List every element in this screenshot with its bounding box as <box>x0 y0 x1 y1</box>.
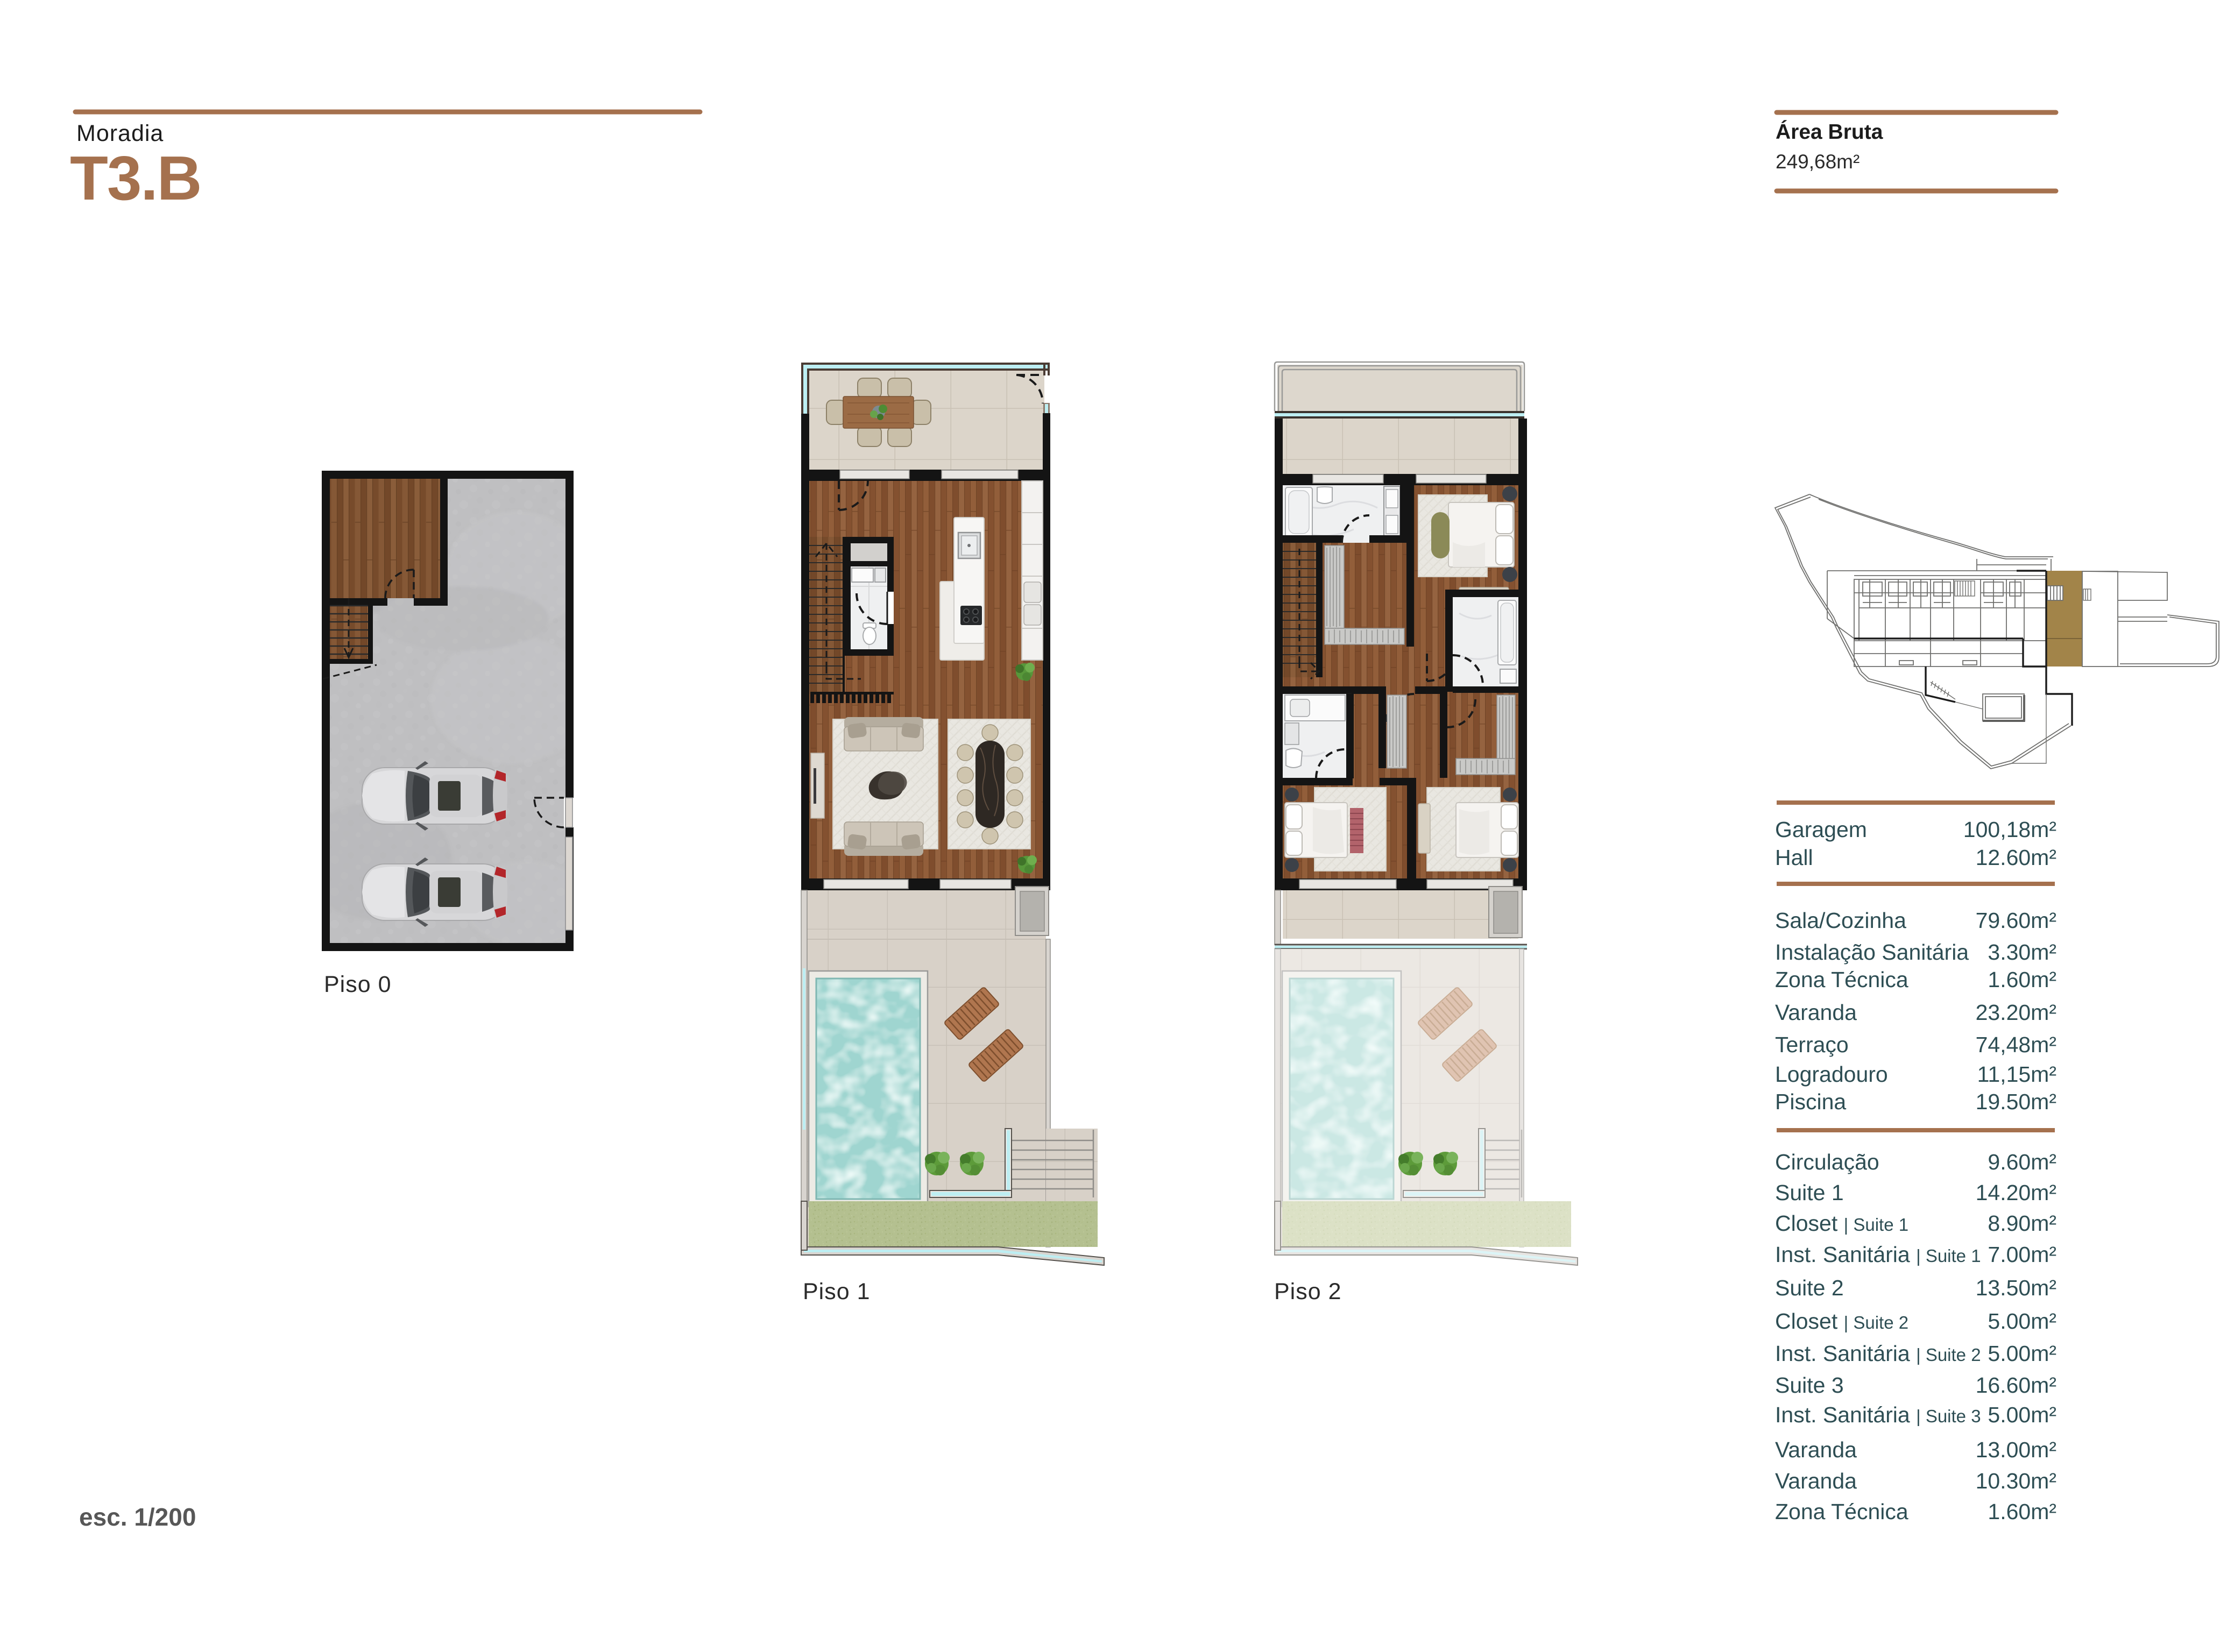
svg-text:249,68m²: 249,68m² <box>1776 151 1860 173</box>
svg-text:Piscina: Piscina <box>1775 1089 1846 1114</box>
svg-text:23.20m²: 23.20m² <box>1976 1000 2056 1025</box>
svg-text:Área Bruta: Área Bruta <box>1776 120 1883 144</box>
svg-text:3.30m²: 3.30m² <box>1988 940 2056 965</box>
svg-text:13.00m²: 13.00m² <box>1976 1437 2056 1462</box>
svg-text:esc. 1/200: esc. 1/200 <box>79 1503 196 1531</box>
svg-text:5.00m²: 5.00m² <box>1988 1309 2056 1334</box>
svg-text:19.50m²: 19.50m² <box>1976 1089 2056 1114</box>
svg-text:Varanda: Varanda <box>1775 1469 1857 1493</box>
svg-text:10.30m²: 10.30m² <box>1976 1469 2056 1493</box>
svg-text:T3.B: T3.B <box>70 143 201 213</box>
svg-text:Instalação Sanitária: Instalação Sanitária <box>1775 940 1969 965</box>
svg-text:Piso 2: Piso 2 <box>1274 1279 1342 1304</box>
svg-text:7.00m²: 7.00m² <box>1988 1242 2056 1267</box>
svg-text:Zona Técnica: Zona Técnica <box>1775 967 1908 992</box>
svg-text:74,48m²: 74,48m² <box>1976 1032 2056 1057</box>
svg-text:Suite 3: Suite 3 <box>1775 1373 1844 1398</box>
svg-text:100,18m²: 100,18m² <box>1963 817 2056 842</box>
svg-text:Closet | Suite 2: Closet | Suite 2 <box>1775 1309 1908 1334</box>
svg-text:Inst. Sanitária | Suite 3: Inst. Sanitária | Suite 3 <box>1775 1402 1981 1427</box>
svg-text:Zona Técnica: Zona Técnica <box>1775 1499 1908 1524</box>
svg-text:79.60m²: 79.60m² <box>1976 908 2056 933</box>
svg-text:Varanda: Varanda <box>1775 1000 1857 1025</box>
svg-text:1.60m²: 1.60m² <box>1988 967 2056 992</box>
svg-text:Circulação: Circulação <box>1775 1150 1879 1174</box>
svg-text:Closet | Suite 1: Closet | Suite 1 <box>1775 1211 1908 1236</box>
svg-text:Piso 1: Piso 1 <box>803 1279 871 1304</box>
svg-text:Inst. Sanitária | Suite 1: Inst. Sanitária | Suite 1 <box>1775 1242 1981 1267</box>
svg-text:14.20m²: 14.20m² <box>1976 1180 2056 1205</box>
svg-text:5.00m²: 5.00m² <box>1988 1402 2056 1427</box>
svg-text:1.60m²: 1.60m² <box>1988 1499 2056 1524</box>
svg-text:Varanda: Varanda <box>1775 1437 1857 1462</box>
svg-text:Hall: Hall <box>1775 845 1813 870</box>
svg-text:Suite 1: Suite 1 <box>1775 1180 1844 1205</box>
svg-text:Garagem: Garagem <box>1775 817 1867 842</box>
svg-text:Logradouro: Logradouro <box>1775 1062 1888 1087</box>
svg-text:8.90m²: 8.90m² <box>1988 1211 2056 1236</box>
svg-text:Inst. Sanitária | Suite 2: Inst. Sanitária | Suite 2 <box>1775 1341 1981 1366</box>
svg-text:Piso 0: Piso 0 <box>324 972 392 997</box>
svg-text:12.60m²: 12.60m² <box>1976 845 2056 870</box>
svg-text:9.60m²: 9.60m² <box>1988 1150 2056 1174</box>
svg-text:16.60m²: 16.60m² <box>1976 1373 2056 1398</box>
svg-text:Terraço: Terraço <box>1775 1032 1849 1057</box>
svg-text:Suite 2: Suite 2 <box>1775 1275 1844 1300</box>
svg-text:Sala/Cozinha: Sala/Cozinha <box>1775 908 1906 933</box>
svg-text:Moradia: Moradia <box>76 120 164 146</box>
svg-text:13.50m²: 13.50m² <box>1976 1275 2056 1300</box>
svg-text:5.00m²: 5.00m² <box>1988 1341 2056 1366</box>
svg-text:11,15m²: 11,15m² <box>1977 1062 2056 1087</box>
